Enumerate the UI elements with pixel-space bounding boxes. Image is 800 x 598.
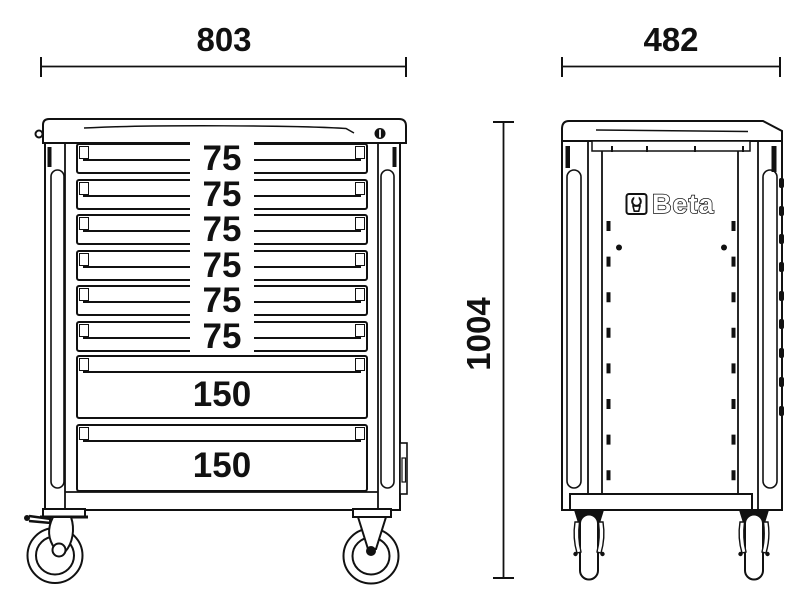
drawer-latch-bumps <box>779 178 784 416</box>
key-lock-icon <box>375 128 386 139</box>
drawer-6: 75 <box>76 321 368 352</box>
drawer-height-label: 75 <box>78 216 366 243</box>
drawer-1: 75 <box>76 143 368 174</box>
beta-logo-text: Beta <box>652 191 715 218</box>
side-height-dimension-label: 1004 <box>462 254 496 414</box>
technical-drawing-canvas: 803 482 1004 75 75 75 75 75 75 <box>0 0 800 598</box>
side-depth-dimension-label: 482 <box>571 23 771 57</box>
drawer-height-label: 75 <box>78 252 366 279</box>
side-front-caster <box>738 510 769 580</box>
drawer-5: 75 <box>76 285 368 316</box>
drawer-handle-cap <box>355 358 365 371</box>
drawer-height-label: 150 <box>78 372 366 417</box>
drawer-height-label: 75 <box>78 323 366 350</box>
drawer-8: 150 <box>76 424 368 492</box>
drawer-height-label: 150 <box>78 441 366 490</box>
beta-logo-wordmark: Beta <box>651 191 723 218</box>
beta-logo: Beta <box>625 191 723 218</box>
drawer-handle-cap <box>355 427 365 440</box>
rim-hinge-nub <box>36 131 43 138</box>
drawer-height-label: 75 <box>78 287 366 314</box>
drawer-height-label: 75 <box>78 181 366 208</box>
side-view-cabinet <box>562 121 784 510</box>
drawer-handle-cap <box>79 358 89 371</box>
front-width-dimension-line <box>41 57 406 77</box>
side-bottom-bar <box>570 494 752 510</box>
front-width-dimension-label: 803 <box>124 23 324 57</box>
drawer-4: 75 <box>76 250 368 281</box>
drawer-7: 150 <box>76 355 368 419</box>
drawer-3: 75 <box>76 214 368 245</box>
drawer-2: 75 <box>76 179 368 210</box>
beta-brand-icon <box>625 192 649 217</box>
side-depth-dimension-line <box>562 57 780 77</box>
drawer-height-label: 75 <box>78 145 366 172</box>
front-right-caster <box>344 509 399 584</box>
drawer-handle-cap <box>79 427 89 440</box>
side-rear-caster <box>573 510 604 580</box>
front-left-caster-with-brake <box>24 509 88 583</box>
